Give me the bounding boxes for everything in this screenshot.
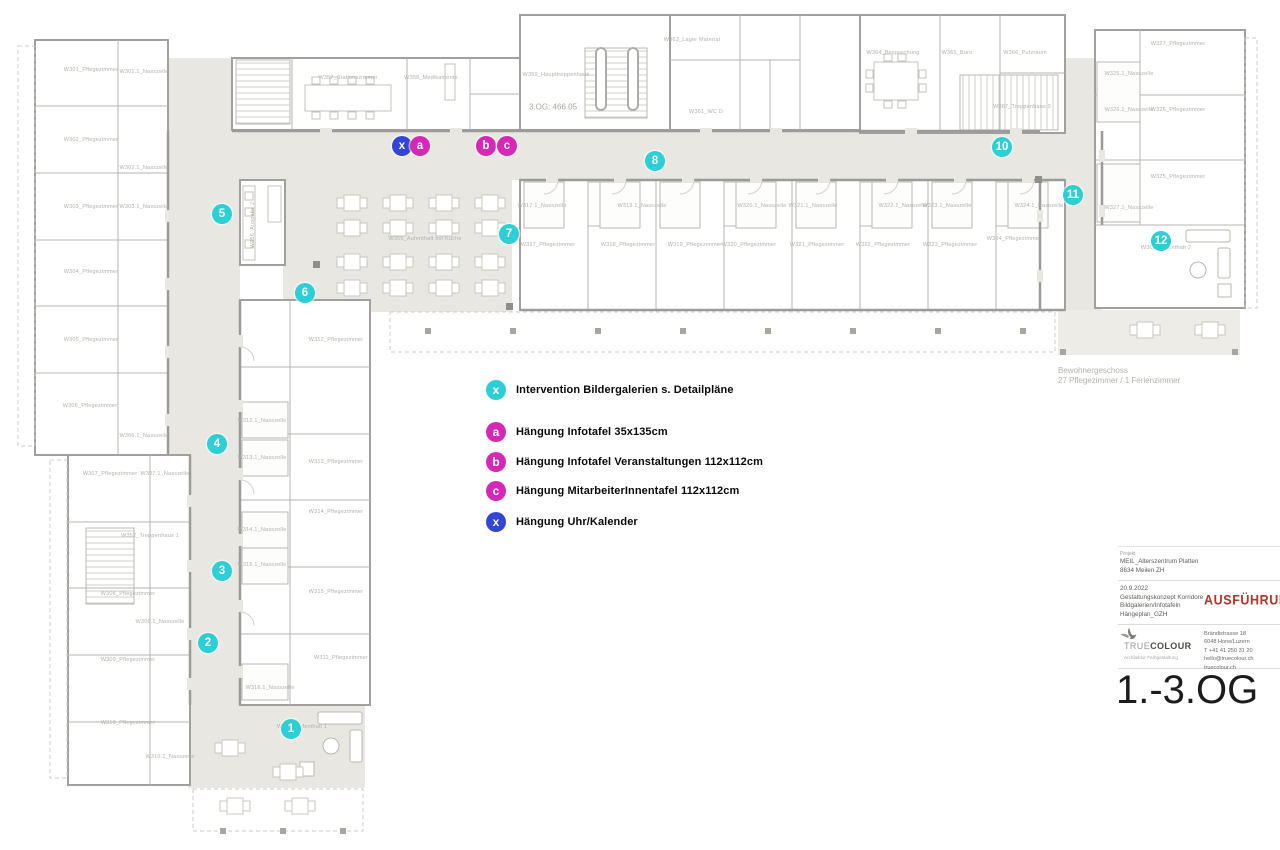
- room-label: W306_Pflegezimmer: [63, 403, 117, 409]
- plan-marker-1: 1: [281, 719, 301, 739]
- room-label: W314_Pflegezimmer: [309, 509, 363, 515]
- room-label: W314.1_Nasszelle: [237, 527, 286, 533]
- plan-marker-5: 5: [212, 204, 232, 224]
- legend-label: Intervention Bildergalerien s. Detailplä…: [516, 384, 734, 396]
- plan-marker-2: 2: [198, 633, 218, 653]
- room-label: W367_Treppenhaus 3: [993, 104, 1051, 110]
- legend-label: Hängung Infotafel 35x135cm: [516, 426, 668, 438]
- floor-title: 1.-3.OG: [1116, 668, 1258, 713]
- area-note-line2: 27 Pflegezimmer / 1 Ferienzimmer: [1058, 376, 1180, 386]
- titleblock-line: 6048 Horw/Luzern: [1204, 638, 1254, 646]
- titleblock-project: Projekt MEIL_Alterszentrum Platten8634 M…: [1118, 546, 1280, 581]
- plan-marker-11: 11: [1063, 185, 1083, 205]
- room-label: W307.1_Nasszelle: [140, 471, 189, 477]
- room-label: W322_Pflegezimmer: [856, 242, 910, 248]
- room-label: W357_Stationszimmer: [318, 75, 377, 81]
- legend-symbol-c: c: [486, 481, 506, 501]
- room-label: W319.1_Nasszelle: [617, 203, 666, 209]
- level-elevation-note: 3.OG: 466.05: [529, 103, 577, 112]
- room-label: W308_Pflegezimmer: [101, 591, 155, 597]
- room-label: W316.1_Nasszelle: [245, 685, 294, 691]
- plan-marker-b: b: [476, 136, 496, 156]
- plan-marker-7: 7: [499, 224, 519, 244]
- plan-marker-12: 12: [1151, 231, 1171, 251]
- room-label: W325_Pflegezimmer: [1151, 174, 1205, 180]
- legend-item: xHängung Uhr/Kalender: [486, 512, 638, 532]
- titleblock-revision: 20.9.2022Gestaltungskonzept KorridoreBil…: [1118, 581, 1280, 625]
- room-label: W356_Ausgabe 2: [250, 202, 256, 249]
- room-label: W302_Pflegezimmer: [64, 137, 118, 143]
- room-label: W320_Pflegezimmer: [722, 242, 776, 248]
- room-label: W307_Pflegezimmer: [83, 471, 137, 477]
- room-label: W355_Aufenthalt mit Küche: [388, 236, 461, 242]
- titleblock: Projekt MEIL_Alterszentrum Platten8634 M…: [1118, 546, 1280, 669]
- room-label: W315_Pflegezimmer: [309, 589, 363, 595]
- titleblock-line: Brändistrasse 18: [1204, 630, 1254, 638]
- area-note: Bewohnergeschoss 27 Pflegezimmer / 1 Fer…: [1058, 366, 1180, 386]
- logo-subtitle: Architektur Farbgestaltung: [1124, 655, 1192, 660]
- room-label: W301_Pflegezimmer: [64, 67, 118, 73]
- execution-stamp: AUSFÜHRUNG: [1204, 592, 1280, 608]
- room-label: W358_Medikamente: [404, 75, 458, 81]
- room-label: W317_Pflegezimmer: [521, 242, 575, 248]
- legend-label: Hängung MitarbeiterInnentafel 112x112cm: [516, 485, 739, 497]
- legend-item: aHängung Infotafel 35x135cm: [486, 422, 668, 442]
- project-label: Projekt: [1120, 551, 1280, 557]
- plan-marker-a: a: [410, 136, 430, 156]
- plan-marker-c: c: [497, 136, 517, 156]
- room-label: W327_Pflegezimmer: [1151, 41, 1205, 47]
- legend-symbol-x: x: [486, 512, 506, 532]
- room-label: W323.1_Nasszelle: [922, 203, 971, 209]
- room-label: W326_Pflegezimmer: [1151, 107, 1205, 113]
- room-label: W359_Haupttreppenhaus: [523, 72, 590, 78]
- room-label: W365_Büro: [942, 50, 973, 56]
- legend-item: bHängung Infotafel Veranstaltungen 112x1…: [486, 452, 763, 472]
- room-label: W303.1_Nasszelle: [119, 204, 168, 210]
- room-label: W361_WC D: [689, 109, 723, 115]
- plan-marker-10: 10: [992, 137, 1012, 157]
- sheet: W301_PflegezimmerW301.1_NasszelleW302_Pf…: [0, 0, 1280, 850]
- legend-label: Hängung Infotafel Veranstaltungen 112x11…: [516, 456, 763, 468]
- room-label: W303_Pflegezimmer: [64, 204, 118, 210]
- plan-marker-x: x: [392, 136, 412, 156]
- room-label: W321.1_Nasszelle: [788, 203, 837, 209]
- room-label: W324_Pflegezimmer: [987, 236, 1041, 242]
- titleblock-line: MEIL_Alterszentrum Platten: [1120, 558, 1280, 567]
- room-label: W326.1_Nasszelle: [1104, 107, 1153, 113]
- plan-marker-4: 4: [207, 434, 227, 454]
- room-label: W322.1_Nasszelle: [878, 203, 927, 209]
- room-label: W317.1_Nasszelle: [517, 203, 566, 209]
- titleblock-line: 8634 Meilen ZH: [1120, 567, 1280, 576]
- titleblock-firm: TRUECOLOUR Architektur Farbgestaltung Br…: [1118, 625, 1280, 669]
- room-label: W366_Putzraum: [1003, 50, 1047, 56]
- legend-symbol-x: x: [486, 380, 506, 400]
- logo-text-bold: COLOUR: [1150, 641, 1191, 651]
- room-label: W304_Pflegezimmer: [64, 269, 118, 275]
- titleblock-line: Hängeplan_GZH: [1120, 611, 1280, 620]
- room-label: W315.1_Nasszelle: [237, 562, 286, 568]
- legend-label: Hängung Uhr/Kalender: [516, 516, 638, 528]
- area-note-line1: Bewohnergeschoss: [1058, 366, 1180, 376]
- room-label: W312.1_Nasszelle: [237, 418, 286, 424]
- room-label: W309_Pflegezimmer: [101, 657, 155, 663]
- titleblock-line: hello@truecolour.ch: [1204, 655, 1254, 663]
- room-label: W319_Pflegezimmer: [668, 242, 722, 248]
- room-label: W327.1_Nasszelle: [1104, 205, 1153, 211]
- legend-symbol-a: a: [486, 422, 506, 442]
- room-label: W324.1_Nasszelle: [1014, 203, 1063, 209]
- room-label: W325.1_Nasszelle: [1104, 71, 1153, 77]
- room-label: W352_Treppenhaus 1: [121, 533, 179, 539]
- legend-item: xIntervention Bildergalerien s. Detailpl…: [486, 380, 734, 400]
- room-label: W308.1_Nasszelle: [135, 619, 184, 625]
- room-label: W313.1_Nasszelle: [237, 455, 286, 461]
- room-label: W310_Pflegezimmer: [101, 720, 155, 726]
- room-label: W323_Pflegezimmer: [923, 242, 977, 248]
- room-label: W302.1_Nasszelle: [119, 165, 168, 171]
- room-label: W312_Pflegezimmer: [309, 337, 363, 343]
- room-label: W310.1_Nasszelle: [145, 754, 194, 760]
- titleblock-line: T +41 41 250 31 20: [1204, 647, 1254, 655]
- room-label: W306.1_Nasszelle: [119, 433, 168, 439]
- legend-item: cHängung MitarbeiterInnentafel 112x112cm: [486, 481, 739, 501]
- room-label: W363_Lager Material: [664, 37, 720, 43]
- plan-marker-3: 3: [212, 561, 232, 581]
- legend-symbol-b: b: [486, 452, 506, 472]
- room-label: W305_Pflegezimmer: [64, 337, 118, 343]
- room-label: W318_Pflegezimmer: [601, 242, 655, 248]
- room-label: W313_Pflegezimmer: [309, 459, 363, 465]
- room-label: W321_Pflegezimmer: [790, 242, 844, 248]
- room-label: W311_Pflegezimmer: [314, 655, 368, 661]
- firm-address: Brändistrasse 186048 Horw/LuzernT +41 41…: [1204, 630, 1254, 672]
- room-label: W364_Besprechung: [866, 50, 919, 56]
- room-label: W320.1_Nasszelle: [737, 203, 786, 209]
- plan-marker-8: 8: [645, 151, 665, 171]
- plan-marker-6: 6: [295, 283, 315, 303]
- room-label: W301.1_Nasszelle: [119, 69, 168, 75]
